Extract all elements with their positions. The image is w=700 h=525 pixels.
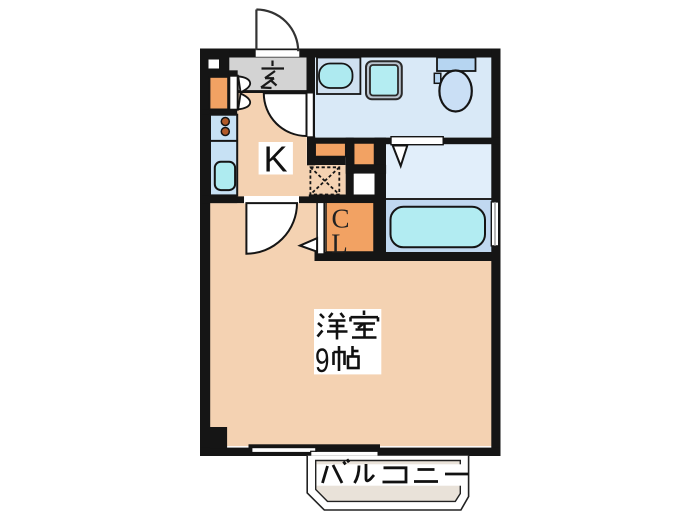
svg-text:L: L: [331, 229, 348, 259]
svg-text:K: K: [263, 139, 287, 180]
svg-text:9: 9: [315, 342, 330, 380]
